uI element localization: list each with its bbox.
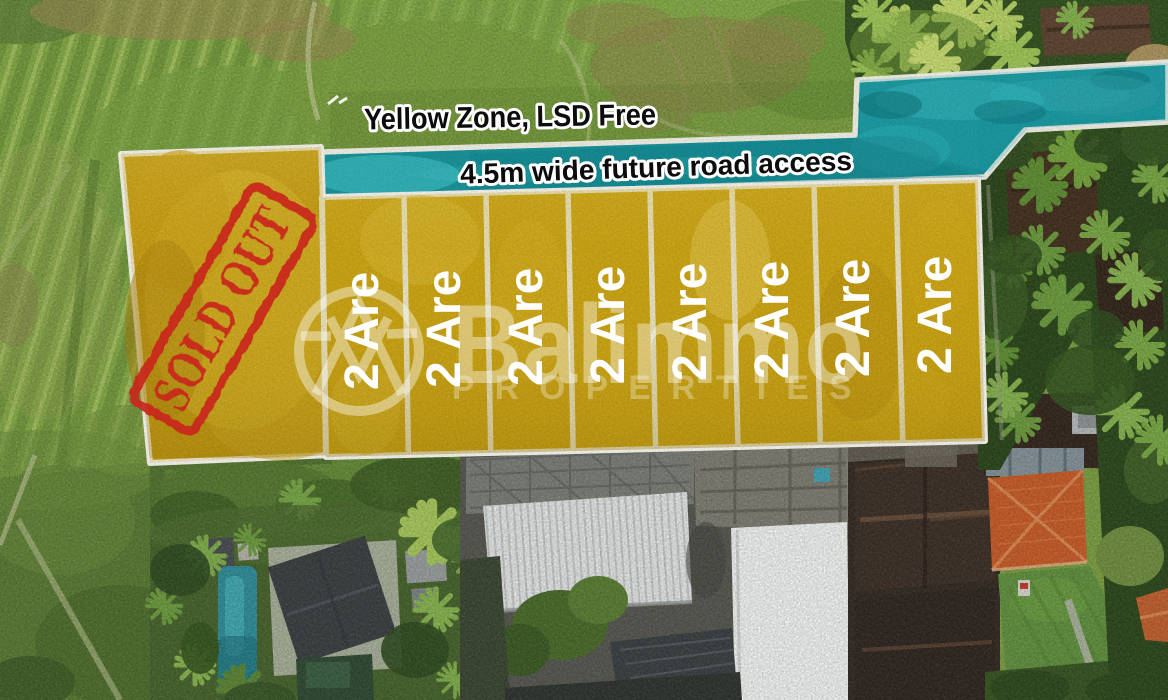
svg-text:2 Are: 2 Are (336, 272, 389, 390)
svg-text:2 Are: 2 Are (500, 268, 553, 386)
svg-text:2 Are: 2 Are (664, 263, 717, 381)
svg-text:2 Are: 2 Are (582, 266, 635, 384)
svg-text:Yellow Zone, LSD Free: Yellow Zone, LSD Free (364, 98, 657, 136)
svg-text:2 Are: 2 Are (418, 270, 471, 388)
svg-text:2 Are: 2 Are (909, 256, 962, 374)
svg-text:2 Are: 2 Are (827, 259, 880, 377)
svg-text:2 Are: 2 Are (746, 261, 799, 379)
